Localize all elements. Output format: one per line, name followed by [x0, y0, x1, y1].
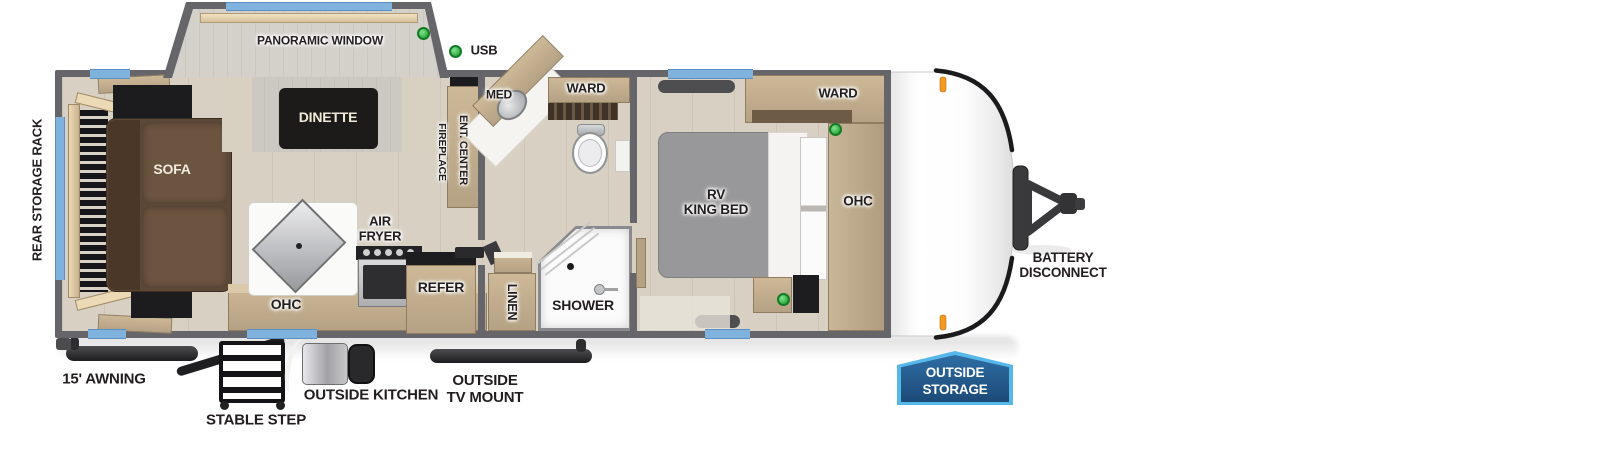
stable-step-wheel	[220, 401, 229, 410]
window-shade	[658, 80, 735, 93]
rear-storage-rack-label: REAR STORAGE RACK	[31, 119, 46, 261]
hitch-coupler	[1060, 193, 1077, 214]
shower-drain	[567, 263, 574, 270]
usb-indicator-dot	[829, 123, 842, 136]
hall-threshold	[455, 247, 484, 258]
refer-label: REFER	[418, 280, 464, 296]
outside-kitchen-label: OUTSIDE KITCHEN	[304, 388, 439, 405]
range-burner	[385, 249, 392, 256]
air-fryer-label: AIR FRYER	[359, 214, 402, 243]
bath-ward-label: WARD	[567, 82, 606, 97]
cap-wall-edge	[884, 70, 891, 338]
bath-ward-louvers	[548, 103, 618, 120]
awning-roller	[66, 346, 198, 361]
dinette-bench	[222, 77, 252, 152]
stable-step-wheel	[276, 401, 285, 410]
stabilizer-jack	[56, 338, 71, 350]
bedroom-ward-label: WARD	[819, 87, 858, 102]
marker-light	[940, 315, 946, 330]
rv-king-bed-label: RV KING BED	[684, 187, 748, 217]
shower-label: SHOWER	[552, 298, 614, 314]
battery-disconnect-label: BATTERY DISCONNECT	[1019, 250, 1106, 280]
bath-cabinet-small	[615, 140, 630, 172]
bedroom-door	[636, 238, 646, 288]
front-cap	[886, 72, 1015, 336]
bedroom-door-bottom	[705, 329, 750, 339]
outside-kitchen-griddle	[302, 343, 348, 385]
med-label: MED	[486, 88, 512, 101]
dinette-label: DINETTE	[299, 110, 358, 126]
sofa-end-table	[113, 85, 192, 121]
marker-light	[940, 77, 946, 92]
hall-floor	[640, 296, 730, 330]
bedroom-ohc-panel	[828, 123, 888, 331]
usb-indicator-dot	[777, 293, 790, 306]
ent-center-tv	[450, 77, 478, 86]
bath-wall-left	[478, 265, 485, 331]
linen-upper-top	[494, 252, 532, 258]
rear-storage-rack-slats	[80, 110, 108, 292]
panoramic-window-label: PANORAMIC WINDOW	[257, 34, 383, 47]
sofa-backrest	[108, 120, 140, 290]
slideout-window	[226, 2, 392, 11]
front-cap-and-hitch	[880, 60, 1095, 360]
rear-top-window	[90, 69, 130, 79]
bedroom-cabinet-dark	[793, 275, 819, 313]
slideout-valance	[200, 13, 418, 23]
sofa-label: SOFA	[153, 162, 190, 178]
awning-label: 15' AWNING	[62, 372, 146, 389]
rear-storage-rack-rail	[68, 104, 80, 298]
bedroom-top-window	[668, 69, 753, 79]
range-burner	[363, 249, 370, 256]
range-burner	[396, 249, 403, 256]
entry-door	[247, 329, 317, 339]
stable-step-label: STABLE STEP	[206, 413, 306, 430]
kitchen-ohc-label: OHC	[271, 297, 302, 313]
ent-center-label: ENT. CENTER	[457, 115, 469, 185]
usb-label: USB	[471, 44, 498, 59]
usb-legend-dot	[449, 45, 462, 58]
bottom-window	[88, 329, 126, 339]
tv-mount-knob	[576, 339, 586, 352]
tv-mount-rail	[430, 349, 592, 363]
refer-cabinet	[406, 265, 476, 334]
outside-storage-label: OUTSIDE STORAGE	[922, 365, 987, 399]
bed-drawers	[800, 137, 827, 280]
range-burner	[374, 249, 381, 256]
shower-head-arm	[604, 288, 618, 291]
toilet-seat	[578, 139, 602, 167]
floorplan-canvas: OUTSIDE STORAGE PANORAMIC WINDOW USB DIN…	[0, 0, 1600, 454]
bedroom-wall	[630, 77, 637, 223]
awning-arm-knob	[70, 337, 79, 350]
linen-label: LINEN	[505, 284, 519, 321]
bedroom-ohc-label: OHC	[843, 193, 872, 208]
sofa-cushion	[142, 206, 228, 288]
hitch-tip	[1075, 198, 1085, 210]
sink-drain	[296, 243, 302, 249]
stable-step-frame	[219, 341, 285, 403]
dinette-bench	[402, 77, 434, 152]
outside-tv-mount-label: OUTSIDE TV MOUNT	[447, 373, 524, 407]
rear-window	[55, 117, 65, 280]
outside-kitchen-case	[348, 344, 375, 384]
sofa-end-table	[131, 288, 192, 318]
usb-indicator-dot	[417, 27, 430, 40]
fireplace-label: FIREPLACE	[435, 123, 447, 181]
bedroom-ward-shadow	[752, 110, 852, 123]
